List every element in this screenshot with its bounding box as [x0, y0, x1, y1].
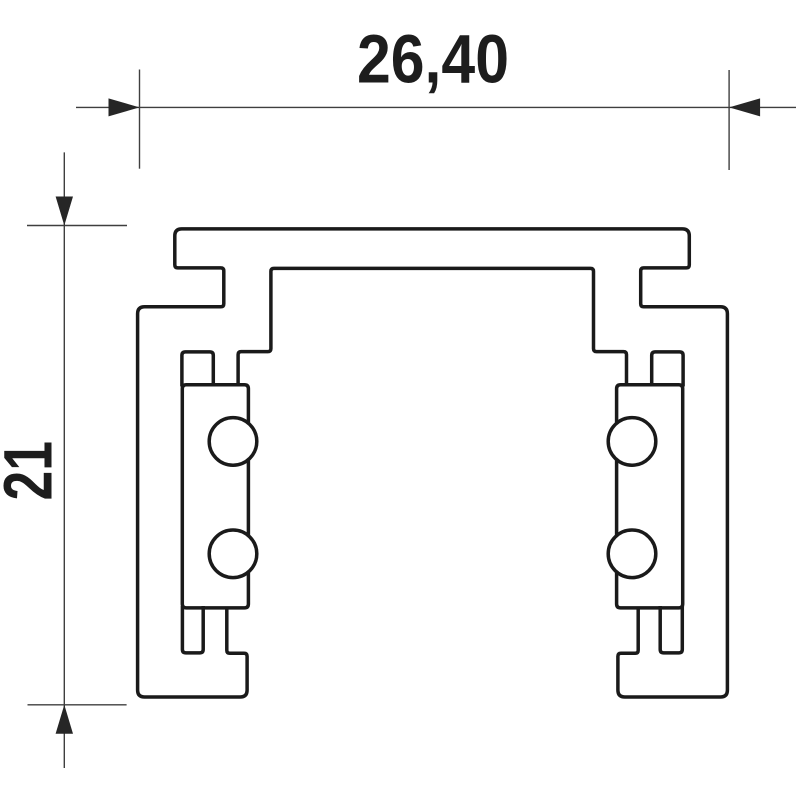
svg-text:26,40: 26,40: [357, 21, 509, 98]
svg-text:21: 21: [0, 441, 67, 501]
